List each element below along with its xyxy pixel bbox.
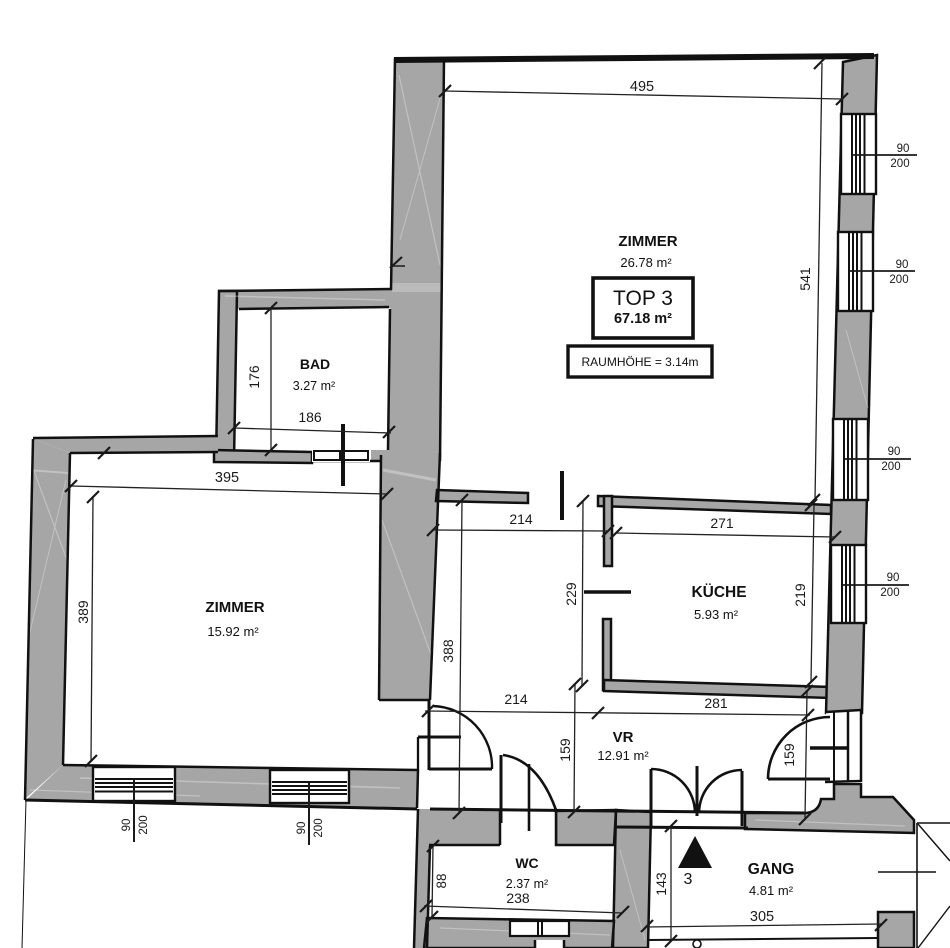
svg-text:GANG: GANG <box>748 861 795 878</box>
svg-text:541: 541 <box>797 267 813 291</box>
svg-text:15.92 m²: 15.92 m² <box>207 624 259 639</box>
svg-text:3.27 m²: 3.27 m² <box>293 379 335 393</box>
svg-text:KÜCHE: KÜCHE <box>691 584 746 601</box>
svg-text:238: 238 <box>506 890 530 906</box>
svg-text:200: 200 <box>890 158 909 170</box>
svg-text:90: 90 <box>896 259 909 271</box>
svg-text:186: 186 <box>298 409 322 425</box>
svg-text:WC: WC <box>515 855 538 871</box>
svg-text:3: 3 <box>684 871 693 888</box>
svg-text:159: 159 <box>781 743 797 767</box>
svg-text:88: 88 <box>434 873 449 888</box>
svg-text:90: 90 <box>121 819 133 832</box>
svg-text:200: 200 <box>313 818 325 837</box>
svg-text:495: 495 <box>630 79 654 95</box>
svg-text:200: 200 <box>138 815 150 834</box>
svg-text:159: 159 <box>557 738 573 762</box>
svg-text:67.18 m²: 67.18 m² <box>614 311 672 327</box>
svg-text:281: 281 <box>704 695 728 711</box>
svg-text:2.37 m²: 2.37 m² <box>506 877 548 891</box>
svg-text:TOP 3: TOP 3 <box>613 287 673 310</box>
svg-text:RAUMHÖHE = 3.14m: RAUMHÖHE = 3.14m <box>581 355 698 369</box>
svg-text:200: 200 <box>881 461 900 473</box>
svg-text:26.78 m²: 26.78 m² <box>620 255 672 270</box>
svg-text:5.93 m²: 5.93 m² <box>694 607 739 622</box>
svg-text:219: 219 <box>792 583 808 607</box>
svg-text:90: 90 <box>888 446 901 458</box>
svg-text:271: 271 <box>710 515 734 531</box>
svg-text:90: 90 <box>296 822 308 835</box>
svg-text:VR: VR <box>613 729 634 746</box>
svg-text:389: 389 <box>75 600 91 624</box>
svg-text:ZIMMER: ZIMMER <box>205 599 264 616</box>
svg-text:143: 143 <box>653 872 669 896</box>
svg-text:BAD: BAD <box>300 356 330 372</box>
svg-text:4.81 m²: 4.81 m² <box>749 883 794 898</box>
svg-text:395: 395 <box>215 470 239 486</box>
svg-text:214: 214 <box>509 511 533 527</box>
svg-text:ZIMMER: ZIMMER <box>618 233 677 250</box>
svg-text:229: 229 <box>563 582 579 606</box>
svg-text:200: 200 <box>889 274 908 286</box>
svg-text:176: 176 <box>246 365 262 389</box>
svg-text:200: 200 <box>880 587 899 599</box>
svg-text:90: 90 <box>887 572 900 584</box>
svg-text:305: 305 <box>750 909 774 925</box>
svg-text:90: 90 <box>897 143 910 155</box>
svg-text:12.91 m²: 12.91 m² <box>597 748 649 763</box>
svg-text:214: 214 <box>504 691 528 707</box>
svg-text:388: 388 <box>440 639 456 663</box>
